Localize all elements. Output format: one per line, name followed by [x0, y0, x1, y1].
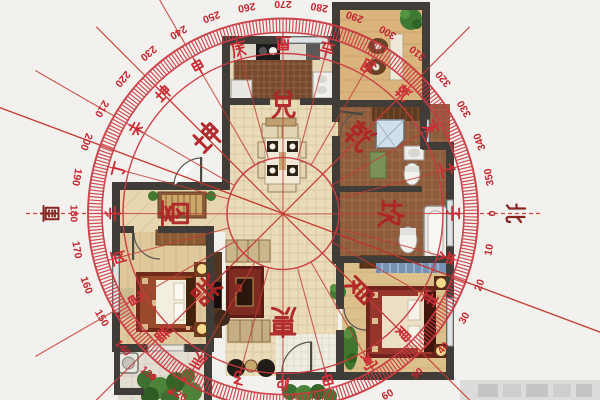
svg-text:180: 180 [68, 205, 80, 223]
svg-text:270: 270 [274, 0, 292, 10]
svg-text:10: 10 [482, 243, 496, 257]
svg-text:0: 0 [486, 210, 498, 216]
